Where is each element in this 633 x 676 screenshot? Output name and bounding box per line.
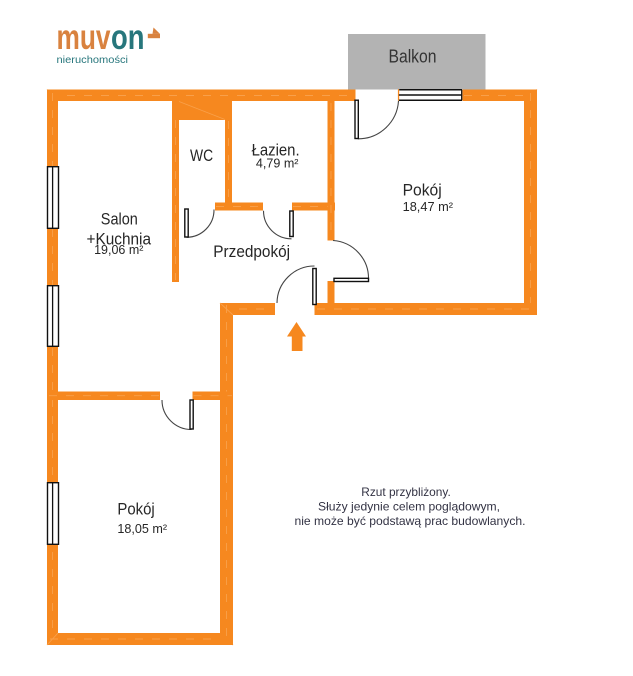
svg-text:19,06 m²: 19,06 m²	[94, 242, 144, 257]
svg-text:Salon: Salon	[101, 209, 138, 228]
svg-text:muv: muv	[57, 18, 111, 57]
svg-text:Rzut przybliżony.: Rzut przybliżony.	[361, 485, 451, 499]
svg-text:WC: WC	[190, 146, 213, 165]
svg-text:Balkon: Balkon	[389, 46, 437, 67]
svg-text:18,47 m²: 18,47 m²	[403, 199, 454, 214]
svg-text:nieruchomości: nieruchomości	[57, 54, 129, 66]
svg-text:Przedpokój: Przedpokój	[213, 242, 290, 261]
svg-text:nie może być podstawą prac bud: nie może być podstawą prac budowlanych.	[295, 514, 526, 528]
svg-text:on: on	[111, 18, 145, 57]
svg-text:18,05 m²: 18,05 m²	[117, 521, 167, 536]
svg-text:Służy jedynie celem poglądowym: Służy jedynie celem poglądowym,	[318, 500, 500, 514]
svg-text:Pokój: Pokój	[403, 180, 442, 199]
svg-text:4,79 m²: 4,79 m²	[256, 156, 299, 171]
svg-text:Pokój: Pokój	[117, 500, 154, 519]
